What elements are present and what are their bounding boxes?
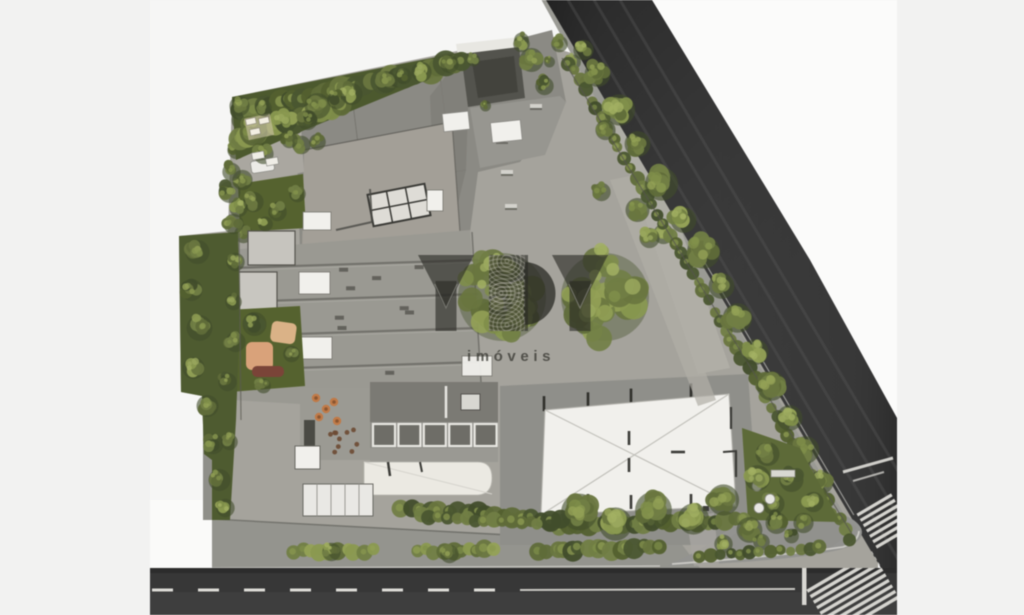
svg-text:imóveis: imóveis bbox=[467, 348, 555, 365]
